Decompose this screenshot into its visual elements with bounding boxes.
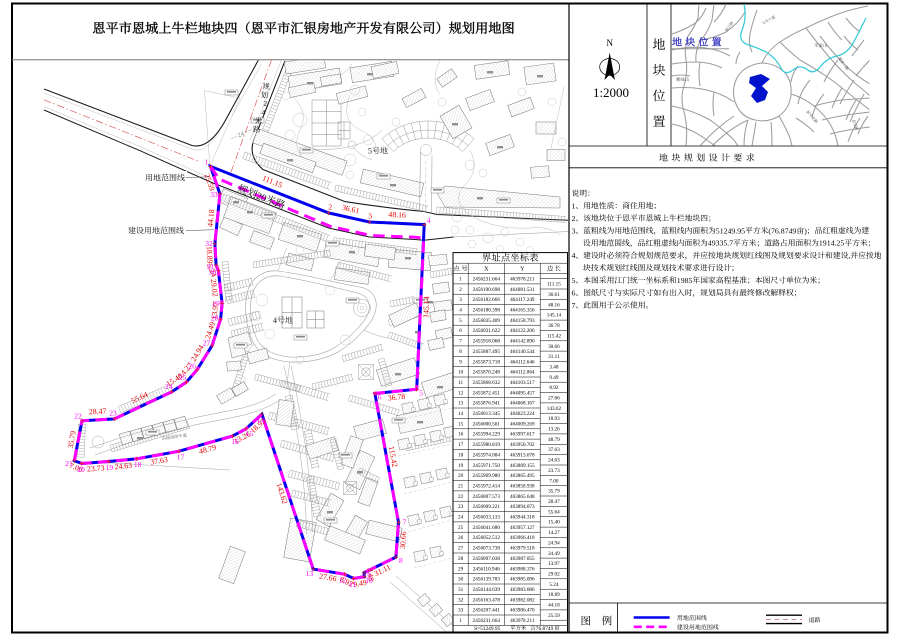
svg-text:49335.7: 49335.7 — [708, 239, 733, 248]
svg-text:20: 20 — [458, 473, 464, 479]
svg-text:23: 23 — [458, 504, 464, 510]
svg-text:2456231.664: 2456231.664 — [473, 277, 501, 283]
svg-text:464158.793: 464158.793 — [510, 318, 535, 324]
svg-text:2456207.441: 2456207.441 — [473, 608, 501, 614]
svg-text:2455980.819: 2455980.819 — [473, 442, 501, 448]
svg-text:): ) — [804, 226, 807, 235]
svg-text:3: 3 — [459, 297, 462, 303]
svg-text:9.49: 9.49 — [549, 375, 558, 381]
svg-text:463978.211: 463978.211 — [510, 618, 535, 624]
svg-text:13.97: 13.97 — [548, 561, 560, 567]
svg-text:25: 25 — [458, 525, 464, 531]
svg-text:2456190.698: 2456190.698 — [473, 287, 501, 293]
svg-text:26: 26 — [188, 362, 196, 371]
svg-text:2456182.666: 2456182.666 — [473, 297, 501, 303]
svg-text:463979.518: 463979.518 — [510, 546, 535, 552]
svg-text:32: 32 — [458, 597, 464, 603]
svg-text:463889.155: 463889.155 — [510, 463, 535, 469]
svg-text:1:2000: 1:2000 — [593, 85, 629, 100]
svg-text:2456139.783: 2456139.783 — [473, 577, 501, 583]
svg-text:1914.25: 1914.25 — [819, 239, 844, 248]
svg-text:463966.418: 463966.418 — [510, 535, 535, 541]
svg-text:464165.356: 464165.356 — [510, 308, 535, 314]
svg-text:12: 12 — [458, 390, 464, 396]
svg-text:2456031.622: 2456031.622 — [473, 328, 501, 334]
svg-text:4: 4 — [572, 251, 576, 260]
svg-text:2456033.133: 2456033.133 — [473, 515, 501, 521]
svg-text:2455974.084: 2455974.084 — [473, 452, 501, 458]
svg-text:2455887.495: 2455887.495 — [473, 349, 501, 355]
svg-text:2455868.632: 2455868.632 — [473, 380, 501, 386]
svg-text:23.73: 23.73 — [548, 468, 560, 474]
svg-text:17: 17 — [177, 452, 185, 461]
svg-text:30.66: 30.66 — [548, 344, 560, 350]
svg-text:36.78: 36.78 — [548, 323, 560, 329]
svg-text:2455969.980: 2455969.980 — [473, 473, 501, 479]
svg-text:14: 14 — [257, 415, 265, 424]
svg-text:1985: 1985 — [677, 276, 693, 285]
svg-text:31: 31 — [207, 262, 215, 271]
svg-text:464023.224: 464023.224 — [510, 411, 535, 417]
svg-text:463865.495: 463865.495 — [510, 473, 535, 479]
svg-text:30: 30 — [458, 577, 464, 583]
svg-text:1: 1 — [459, 277, 462, 283]
svg-text:25.59: 25.59 — [548, 613, 560, 619]
svg-text:33: 33 — [210, 190, 218, 199]
svg-text:44.18: 44.18 — [548, 603, 560, 609]
svg-text:2456180.398: 2456180.398 — [473, 308, 501, 314]
svg-text:2455873.718: 2455873.718 — [473, 359, 501, 365]
svg-text:29.02: 29.02 — [548, 571, 560, 577]
svg-text:463985.096: 463985.096 — [510, 577, 535, 583]
svg-text:2: 2 — [328, 203, 332, 212]
svg-text:2456035.409: 2456035.409 — [473, 318, 501, 324]
svg-text:464140.544: 464140.544 — [510, 349, 535, 355]
svg-text:23: 23 — [109, 409, 117, 418]
svg-text:2455872.451: 2455872.451 — [473, 390, 501, 396]
svg-text:4: 4 — [427, 216, 431, 225]
svg-text:27: 27 — [458, 546, 464, 552]
svg-text:2455870.248: 2455870.248 — [473, 370, 501, 376]
svg-text:48.16: 48.16 — [388, 210, 406, 220]
svg-text:21: 21 — [65, 459, 73, 468]
svg-text:2456073.738: 2456073.738 — [473, 546, 501, 552]
svg-text:24.49: 24.49 — [548, 551, 560, 557]
svg-text:51249.95: 51249.95 — [716, 226, 745, 235]
svg-text:8.92: 8.92 — [549, 385, 558, 391]
svg-text:18: 18 — [134, 460, 142, 469]
svg-text:48.16: 48.16 — [548, 302, 560, 308]
svg-text:5: 5 — [419, 389, 423, 398]
svg-text:463957.127: 463957.127 — [510, 525, 535, 531]
svg-text:15.40: 15.40 — [548, 520, 560, 526]
svg-text:5.24: 5.24 — [549, 582, 558, 588]
svg-text:2456013.345: 2456013.345 — [473, 411, 501, 417]
svg-text:7: 7 — [572, 301, 576, 310]
svg-text:14: 14 — [458, 411, 464, 417]
svg-text:32: 32 — [205, 239, 213, 248]
svg-text:11: 11 — [458, 380, 463, 386]
svg-text:2456163.478: 2456163.478 — [473, 597, 501, 603]
svg-text:2456009.221: 2456009.221 — [473, 504, 501, 510]
svg-text:2455971.750: 2455971.750 — [473, 463, 501, 469]
svg-text:24.94: 24.94 — [548, 540, 560, 546]
svg-text:463913.678: 463913.678 — [510, 452, 535, 458]
svg-text:20: 20 — [77, 465, 85, 474]
svg-text:2455994.229: 2455994.229 — [473, 432, 501, 438]
svg-text:5: 5 — [459, 318, 462, 324]
svg-text:463983.086: 463983.086 — [510, 587, 535, 593]
svg-text:464068.167: 464068.167 — [510, 401, 535, 407]
svg-text:464112.646: 464112.646 — [510, 359, 535, 365]
svg-text:463894.073: 463894.073 — [510, 504, 535, 510]
svg-text:11: 11 — [349, 580, 356, 589]
svg-text:28: 28 — [211, 313, 219, 322]
svg-text:463988.376: 463988.376 — [510, 566, 535, 572]
svg-text:5: 5 — [572, 276, 576, 285]
svg-text:76.8749: 76.8749 — [536, 626, 554, 632]
svg-text:464095.457: 464095.457 — [510, 390, 535, 396]
svg-text:6: 6 — [378, 393, 382, 402]
svg-text:15: 15 — [246, 429, 254, 438]
svg-text:464122.206: 464122.206 — [510, 328, 535, 334]
svg-text:2455972.414: 2455972.414 — [473, 484, 501, 490]
svg-text:5: 5 — [368, 147, 372, 156]
svg-text:17: 17 — [458, 442, 464, 448]
svg-text:463865.648: 463865.648 — [510, 494, 535, 500]
svg-text:28: 28 — [458, 556, 464, 562]
svg-text:29: 29 — [212, 299, 220, 308]
svg-text:35.79: 35.79 — [548, 489, 560, 495]
svg-text:7.00: 7.00 — [549, 478, 558, 484]
svg-text:145.14: 145.14 — [547, 313, 562, 319]
svg-text:8: 8 — [459, 349, 462, 355]
svg-text:4: 4 — [273, 316, 277, 325]
svg-text:2456144.639: 2456144.639 — [473, 587, 501, 593]
svg-text:464009.269: 464009.269 — [510, 421, 535, 427]
svg-text:37.63: 37.63 — [548, 447, 560, 453]
svg-text:3.48: 3.48 — [549, 364, 558, 370]
svg-text:15: 15 — [458, 421, 464, 427]
svg-text:463997.617: 463997.617 — [510, 432, 535, 438]
svg-text:48.79: 48.79 — [548, 437, 560, 443]
svg-text:2456231.664: 2456231.664 — [473, 618, 501, 624]
svg-text:24.63: 24.63 — [114, 461, 132, 472]
svg-text:27: 27 — [203, 339, 211, 348]
svg-text:2: 2 — [459, 287, 462, 293]
svg-text:X: X — [484, 266, 489, 273]
svg-text:13: 13 — [306, 569, 314, 578]
svg-text:115.42: 115.42 — [547, 333, 561, 339]
svg-text:6: 6 — [572, 288, 576, 297]
svg-text:1: 1 — [459, 618, 462, 624]
svg-text:22: 22 — [74, 412, 82, 421]
svg-text:2456097.038: 2456097.038 — [473, 556, 501, 562]
svg-text:14.27: 14.27 — [548, 530, 560, 536]
svg-text:8: 8 — [399, 556, 403, 565]
svg-text:463987.055: 463987.055 — [510, 556, 535, 562]
svg-text:21: 21 — [458, 484, 464, 490]
svg-text:31: 31 — [458, 587, 464, 593]
svg-text:(76.8749: (76.8749 — [768, 226, 796, 235]
svg-text:4: 4 — [262, 108, 266, 117]
svg-text:464142.890: 464142.890 — [510, 339, 535, 345]
svg-text:2456041.680: 2456041.680 — [473, 525, 501, 531]
svg-text:27.66: 27.66 — [548, 396, 560, 402]
svg-text:55.64: 55.64 — [548, 509, 560, 515]
svg-text:6: 6 — [459, 328, 462, 334]
svg-text:463950.702: 463950.702 — [510, 442, 535, 448]
svg-text:31.11: 31.11 — [548, 354, 560, 360]
svg-text:10: 10 — [458, 370, 464, 376]
svg-text:19: 19 — [106, 463, 114, 472]
svg-text:463986.470: 463986.470 — [510, 608, 535, 614]
svg-text:2456110.946: 2456110.946 — [473, 566, 500, 572]
svg-text:N: N — [606, 38, 613, 48]
svg-text:463944.318: 463944.318 — [510, 515, 535, 521]
svg-text:S=51249.95: S=51249.95 — [474, 626, 501, 632]
svg-text:30.66: 30.66 — [398, 531, 408, 549]
svg-text:4: 4 — [459, 308, 462, 314]
svg-text:18.93: 18.93 — [548, 416, 560, 422]
svg-text:1: 1 — [205, 158, 209, 167]
svg-text:13: 13 — [458, 401, 464, 407]
svg-text:143.62: 143.62 — [547, 406, 562, 412]
svg-text:36.78: 36.78 — [387, 392, 405, 403]
svg-text:16: 16 — [231, 437, 239, 446]
svg-text:1: 1 — [572, 201, 576, 210]
svg-text:2456052.512: 2456052.512 — [473, 535, 501, 541]
svg-text:28.47: 28.47 — [89, 406, 107, 416]
svg-text:464103.517: 464103.517 — [510, 380, 535, 386]
svg-text:18.89: 18.89 — [548, 592, 560, 598]
svg-text:13.26: 13.26 — [548, 427, 560, 433]
svg-text:9: 9 — [459, 359, 462, 365]
svg-text:464117.249: 464117.249 — [510, 297, 535, 303]
svg-text:2455918.068: 2455918.068 — [473, 339, 501, 345]
svg-text:12: 12 — [339, 575, 347, 584]
svg-text:24.63: 24.63 — [548, 458, 560, 464]
svg-text:464112.864: 464112.864 — [510, 370, 535, 376]
svg-text:Y: Y — [520, 266, 525, 273]
svg-text:29: 29 — [458, 566, 464, 572]
svg-text:2455876.941: 2455876.941 — [473, 401, 501, 407]
svg-text:463978.211: 463978.211 — [510, 277, 535, 283]
svg-text:7: 7 — [403, 518, 407, 527]
svg-text:3: 3 — [368, 212, 372, 221]
svg-text:44.18: 44.18 — [206, 209, 217, 227]
svg-text:10: 10 — [365, 576, 373, 585]
svg-text:19: 19 — [458, 463, 464, 469]
svg-text:25: 25 — [179, 373, 187, 382]
svg-text:2456007.573: 2456007.573 — [473, 494, 501, 500]
svg-text:3: 3 — [572, 226, 576, 235]
svg-text:24: 24 — [458, 515, 464, 521]
svg-text:36.61: 36.61 — [548, 292, 560, 298]
svg-text:464081.531: 464081.531 — [510, 287, 535, 293]
svg-text:2456000.561: 2456000.561 — [473, 421, 501, 427]
svg-text:145.14: 145.14 — [421, 296, 431, 318]
svg-text:22: 22 — [458, 494, 464, 500]
svg-text:24: 24 — [165, 382, 173, 391]
svg-text:28.47: 28.47 — [548, 499, 560, 505]
svg-text:26: 26 — [458, 535, 464, 541]
svg-text:23.73: 23.73 — [87, 463, 105, 473]
svg-text:16: 16 — [458, 432, 464, 438]
svg-text:,: , — [848, 251, 850, 260]
svg-text:7: 7 — [459, 339, 462, 345]
svg-text:463858.938: 463858.938 — [510, 484, 535, 490]
svg-text:2: 2 — [572, 214, 576, 223]
svg-text:111.15: 111.15 — [547, 282, 561, 288]
svg-text:18: 18 — [458, 452, 464, 458]
svg-text:33: 33 — [458, 608, 464, 614]
svg-text:463982.082: 463982.082 — [510, 597, 535, 603]
